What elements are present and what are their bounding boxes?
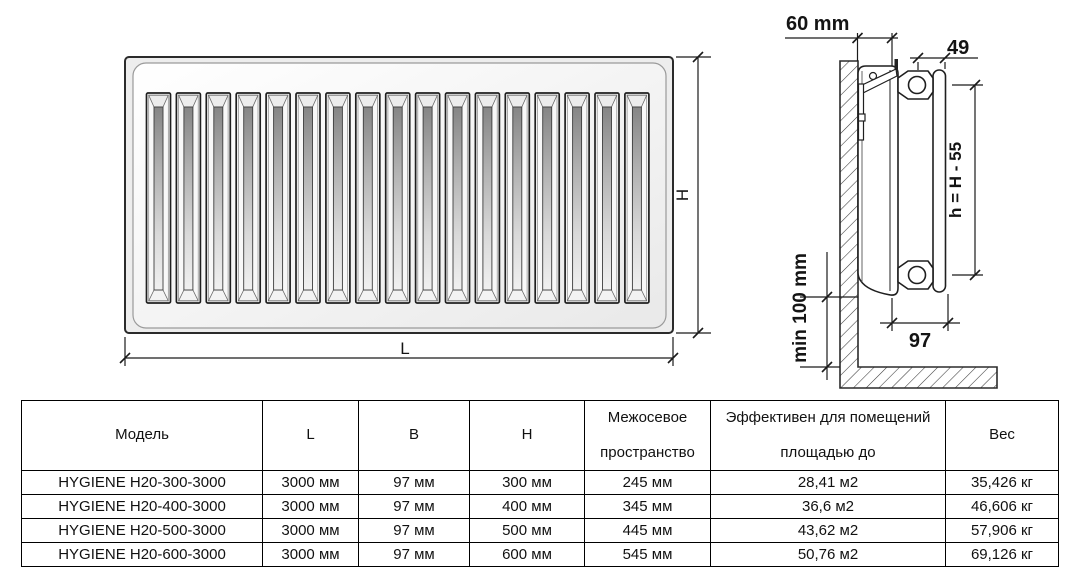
dim-wall-offset-label: 60 mm — [786, 13, 849, 35]
cell-B: 97 мм — [359, 519, 470, 543]
cell-effective-area: 43,62 м2 — [711, 519, 946, 543]
cell-H: 400 мм — [470, 495, 585, 519]
cell-B: 97 мм — [359, 543, 470, 567]
col-header-effective-area: Эффективен для помещений площадью до — [711, 401, 946, 471]
cell-effective-area: 50,76 м2 — [711, 543, 946, 567]
dim-H: H — [673, 52, 711, 338]
spec-table: Модель L B H Межосевое пространство Эффе… — [21, 400, 1059, 567]
cell-B: 97 мм — [359, 495, 470, 519]
cell-effective-area: 36,6 м2 — [711, 495, 946, 519]
side-radiator-profile — [858, 59, 946, 295]
col-header-B: B — [359, 401, 470, 471]
dim-L-label: L — [400, 339, 409, 358]
dim-wall-offset: 60 mm — [785, 13, 898, 66]
dim-height-formula: h = H - 55 — [946, 80, 983, 280]
dim-depth-97: 97 — [880, 294, 960, 352]
cell-L: 3000 мм — [263, 471, 359, 495]
front-slots — [147, 93, 649, 303]
table-row: HYGIENE H20-500-3000 3000 мм 97 мм 500 м… — [22, 519, 1059, 543]
radiator-front-view: H L — [95, 25, 745, 375]
header-row: Модель L B H Межосевое пространство Эффе… — [22, 401, 1059, 471]
cell-H: 500 мм — [470, 519, 585, 543]
table-row: HYGIENE H20-600-3000 3000 мм 97 мм 600 м… — [22, 543, 1059, 567]
cell-L: 3000 мм — [263, 519, 359, 543]
cell-weight: 46,606 кг — [946, 495, 1059, 519]
table-row: HYGIENE H20-300-3000 3000 мм 97 мм 300 м… — [22, 471, 1059, 495]
cell-model: HYGIENE H20-600-3000 — [22, 543, 263, 567]
cell-B: 97 мм — [359, 471, 470, 495]
dim-L: L — [120, 337, 678, 366]
col-header-axis-spacing: Межосевое пространство — [585, 401, 711, 471]
cell-model: HYGIENE H20-300-3000 — [22, 471, 263, 495]
cell-H: 300 мм — [470, 471, 585, 495]
cell-weight: 69,126 кг — [946, 543, 1059, 567]
radiator-spec-sheet: H L — [0, 0, 1081, 569]
cell-axis-spacing: 545 мм — [585, 543, 711, 567]
cell-axis-spacing: 345 мм — [585, 495, 711, 519]
dim-H-label: H — [673, 189, 692, 201]
col-header-L: L — [263, 401, 359, 471]
col-header-model: Модель — [22, 401, 263, 471]
dim-axis-49-label: 49 — [947, 37, 969, 59]
cell-axis-spacing: 245 мм — [585, 471, 711, 495]
cell-weight: 35,426 кг — [946, 471, 1059, 495]
dim-axis-49: 49 — [910, 37, 978, 70]
col-header-weight: Вес — [946, 401, 1059, 471]
radiator-side-view: 60 mm 49 h = H - 55 min 100 m — [770, 0, 1070, 395]
cell-L: 3000 мм — [263, 543, 359, 567]
dim-depth-97-label: 97 — [909, 330, 931, 352]
cell-H: 600 мм — [470, 543, 585, 567]
cell-model: HYGIENE H20-400-3000 — [22, 495, 263, 519]
dim-floor-clearance-label: min 100 mm — [790, 253, 811, 363]
col-header-H: H — [470, 401, 585, 471]
cell-L: 3000 мм — [263, 495, 359, 519]
cell-weight: 57,906 кг — [946, 519, 1059, 543]
table-row: HYGIENE H20-400-3000 3000 мм 97 мм 400 м… — [22, 495, 1059, 519]
cell-effective-area: 28,41 м2 — [711, 471, 946, 495]
cell-model: HYGIENE H20-500-3000 — [22, 519, 263, 543]
cell-axis-spacing: 445 мм — [585, 519, 711, 543]
dim-height-formula-label: h = H - 55 — [946, 142, 965, 218]
